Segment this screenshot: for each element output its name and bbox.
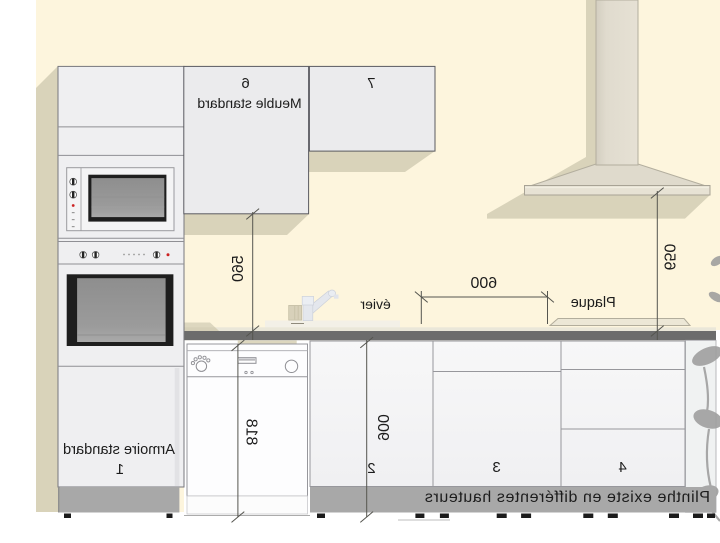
svg-text:7: 7 bbox=[367, 75, 375, 92]
svg-text:4: 4 bbox=[618, 459, 626, 476]
svg-text:560: 560 bbox=[230, 255, 247, 282]
svg-text:2: 2 bbox=[367, 460, 375, 477]
svg-text:3: 3 bbox=[492, 459, 500, 476]
svg-text:900: 900 bbox=[374, 414, 391, 441]
svg-text:1: 1 bbox=[116, 461, 124, 478]
svg-text:évier: évier bbox=[360, 296, 391, 312]
svg-text:Meuble standard: Meuble standard bbox=[197, 95, 301, 111]
svg-text:Armoire standard: Armoire standard bbox=[63, 442, 175, 458]
svg-text:600: 600 bbox=[470, 275, 497, 292]
svg-text:Plaque: Plaque bbox=[571, 295, 616, 311]
svg-text:650: 650 bbox=[661, 244, 678, 271]
svg-text:Plinthe existe en différentes: Plinthe existe en différentes hauteurs bbox=[424, 489, 710, 506]
svg-text:818: 818 bbox=[243, 419, 260, 446]
svg-text:6: 6 bbox=[241, 75, 249, 92]
